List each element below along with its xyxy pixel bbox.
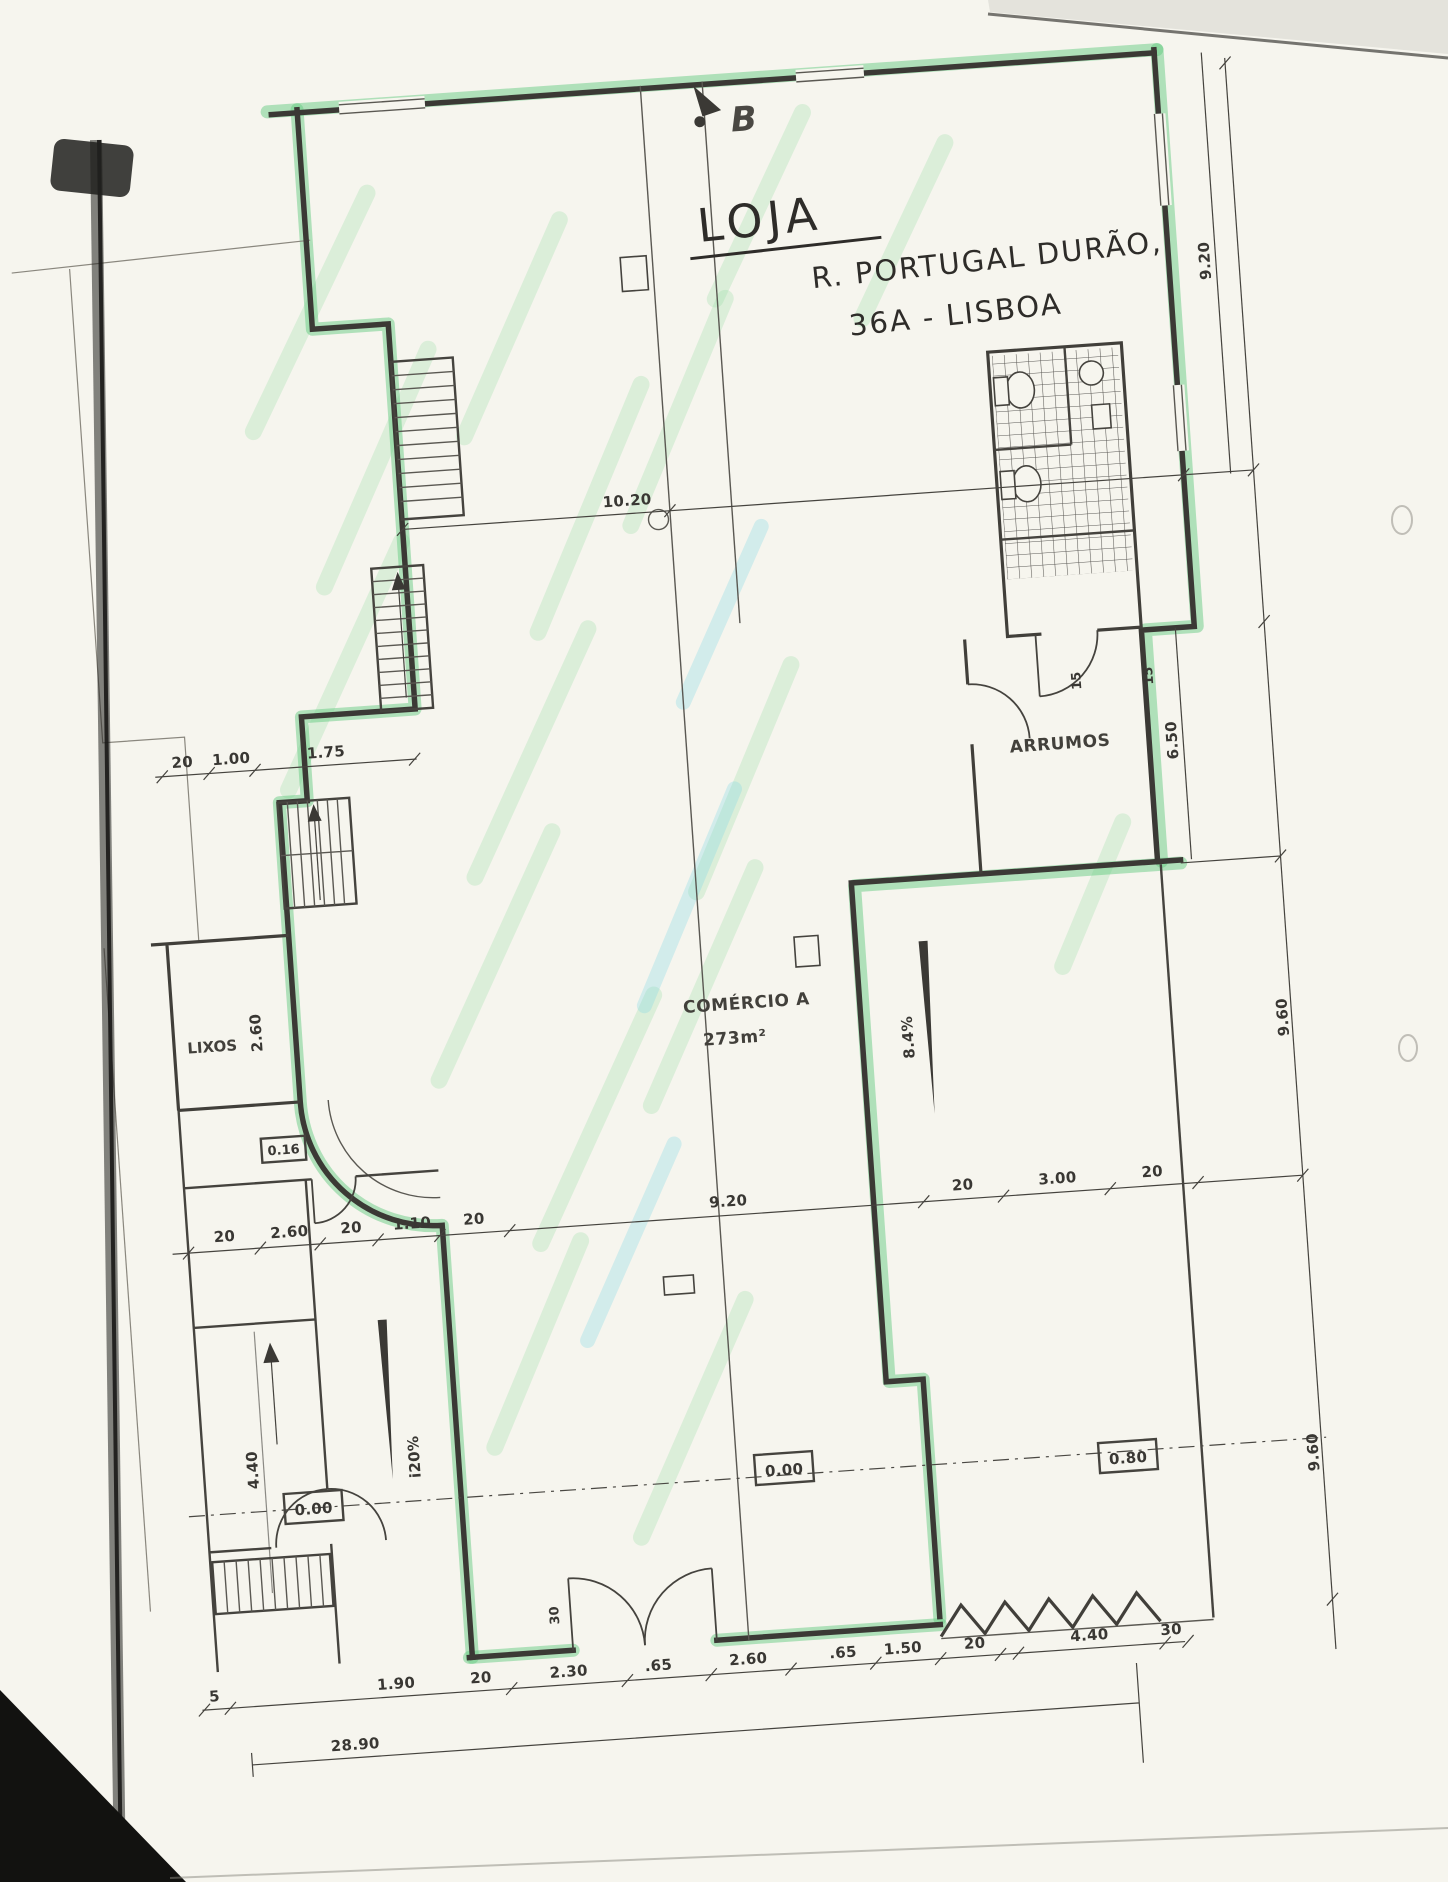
dim-middle-4: 20 — [463, 1209, 486, 1228]
level-markers — [259, 1078, 1158, 1530]
dim-bottom-2: 20 — [470, 1668, 493, 1687]
sink-icon — [1092, 404, 1112, 429]
bathroom-block — [988, 343, 1146, 699]
section-line-b: B — [640, 78, 862, 1640]
plan-group: B — [1, 40, 1348, 1835]
ramp-arrow-left — [378, 1319, 398, 1479]
dim-bottom-4: .65 — [644, 1655, 673, 1675]
highlight-lower-right-wall — [855, 863, 1233, 1621]
slope-left-ramp: i20% — [404, 1435, 425, 1478]
level-box-d: 0.16 — [267, 1142, 300, 1159]
arrumos-door-arc — [968, 680, 1030, 742]
dim-bottom-6: .65 — [829, 1642, 858, 1662]
dim-bottom-10: 30 — [1160, 1620, 1183, 1639]
entrance-double-door — [568, 1568, 717, 1650]
arrumos-wall — [965, 639, 981, 873]
dim-door-width: 30 — [547, 1606, 563, 1625]
section-arrow-icon — [693, 84, 721, 117]
punch-mark — [1392, 506, 1412, 534]
dim-middle-6: 20 — [951, 1175, 974, 1194]
scan-blob — [50, 138, 135, 198]
adjacent-building-outline — [11, 240, 405, 1615]
dim-middle-1: 2.60 — [270, 1222, 309, 1243]
ramp-arrow-right — [919, 941, 940, 1114]
dim-bottom-3: 2.30 — [549, 1661, 588, 1682]
dim-leftstair-1: 1.00 — [211, 749, 250, 770]
scan-corner-shadow — [0, 1690, 186, 1882]
page-edge-top — [988, 0, 1448, 54]
level-box-c: 0.80 — [1108, 1448, 1147, 1469]
sink-icon — [1079, 360, 1105, 386]
level-box-a: 0.00 — [294, 1499, 333, 1520]
dim-bottom-9: 4.40 — [1070, 1625, 1109, 1646]
dim-leftstair-0: 20 — [171, 753, 194, 772]
dim-right-2: 9.60 — [1272, 998, 1293, 1037]
dim-bathdoor-1: 15 — [1141, 666, 1157, 685]
stair-arrow-icon — [262, 1342, 279, 1363]
punch-mark — [1399, 1035, 1417, 1061]
dim-bottom-7: 1.50 — [883, 1638, 922, 1659]
dim-bottom-1: 1.90 — [376, 1673, 415, 1694]
dim-bottom-5: 2.60 — [729, 1649, 768, 1670]
dim-bottom-0: 5 — [209, 1687, 221, 1706]
dim-middle-2: 20 — [340, 1218, 363, 1237]
dim-middle-8: 20 — [1141, 1162, 1164, 1181]
room-label-arrumos: ARRUMOS — [1009, 731, 1111, 758]
dim-middle-5: 9.20 — [709, 1191, 748, 1212]
level-box-b: 0.00 — [764, 1460, 803, 1481]
dim-middle-3: 1.10 — [392, 1213, 431, 1234]
toilet-tank-icon — [993, 377, 1009, 406]
toilet-tank-icon — [1000, 471, 1016, 500]
slope-right-ramp: 8.4% — [898, 1015, 919, 1059]
dim-right-0: 9.20 — [1194, 241, 1215, 280]
room-label-lixos: LIXOS — [187, 1036, 238, 1057]
floor-plan-scan: B — [0, 0, 1448, 1882]
dim-middle-0: 20 — [213, 1227, 236, 1246]
dim-stair-width: 4.40 — [243, 1450, 264, 1489]
bath-door-arc — [1035, 630, 1101, 696]
dim-right-1: 6.50 — [1162, 721, 1183, 760]
dim-lixos-depth: 2.60 — [246, 1013, 267, 1052]
section-marker-label: B — [729, 99, 758, 141]
handwritten-address-1: R. PORTUGAL DURÃO, — [810, 225, 1164, 296]
dim-leftstair-2: 1.75 — [306, 742, 345, 763]
dim-right-3: 9.60 — [1303, 1432, 1324, 1471]
dim-bottom-total: 28.90 — [330, 1734, 380, 1755]
handwritten-title: LOJA — [695, 186, 824, 253]
dim-bottom-8: 20 — [963, 1634, 986, 1653]
dim-top: 10.20 — [602, 490, 652, 511]
zigzag-wall — [939, 1591, 1161, 1636]
room-area-comercio: 273m² — [702, 1026, 767, 1050]
page-edge-bottom — [170, 1828, 1448, 1878]
dim-middle-7: 3.00 — [1038, 1168, 1077, 1189]
plan-drawing: B — [0, 0, 1448, 1882]
dim-bathdoor-0: 15 — [1069, 671, 1085, 690]
